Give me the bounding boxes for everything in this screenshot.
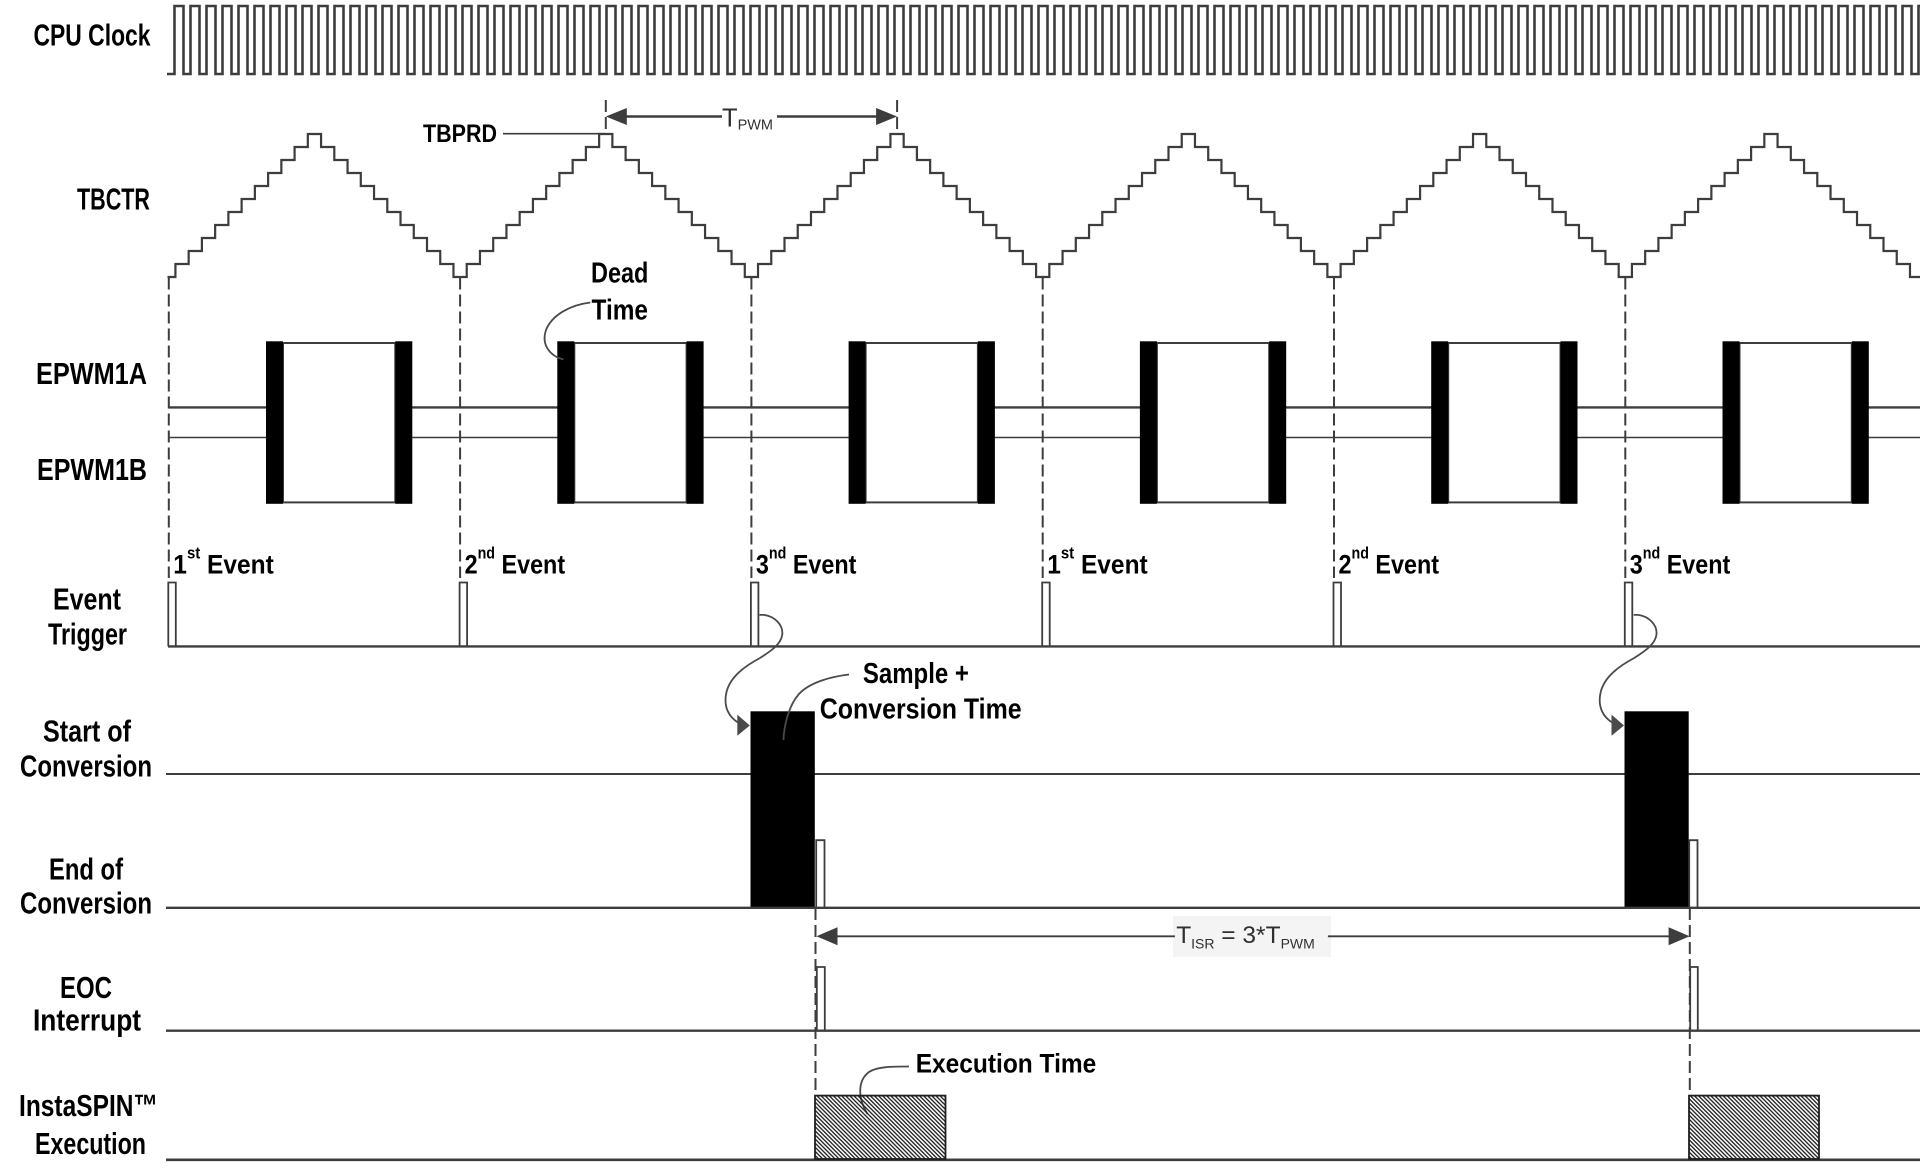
svg-text:EOC: EOC [60,970,112,1005]
svg-text:Execution: Execution [35,1126,146,1161]
svg-text:Event: Event [53,582,121,617]
svg-text:Conversion: Conversion [20,886,152,921]
svg-text:TBPRD: TBPRD [423,120,497,148]
svg-text:CPU Clock: CPU Clock [34,18,152,53]
svg-text:EPWM1A: EPWM1A [36,356,147,391]
svg-text:Start of: Start of [43,714,132,749]
svg-text:Sample +: Sample + [863,658,969,690]
svg-text:Interrupt: Interrupt [33,1003,141,1038]
svg-text:Execution Time: Execution Time [916,1049,1097,1079]
svg-text:Time: Time [592,294,649,326]
svg-text:Conversion: Conversion [20,749,152,784]
svg-text:End of: End of [49,852,124,887]
svg-text:Trigger: Trigger [48,617,127,652]
svg-text:Conversion Time: Conversion Time [820,694,1022,726]
svg-text:InstaSPIN™: InstaSPIN™ [19,1088,158,1123]
svg-text:EPWM1B: EPWM1B [37,452,147,487]
svg-text:TBCTR: TBCTR [77,182,150,217]
svg-text:Dead: Dead [591,257,648,289]
